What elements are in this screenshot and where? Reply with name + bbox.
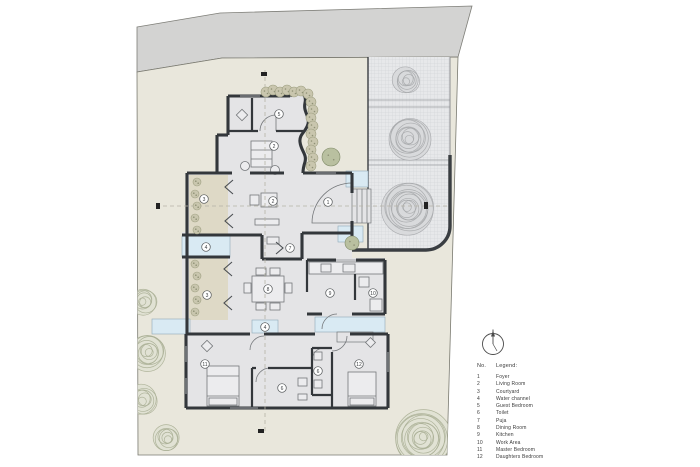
room-label: 5 — [275, 110, 284, 119]
shrub-dot — [312, 151, 314, 153]
legend: No. Legend: 1Foyer2Living Room3Courtyard… — [477, 362, 587, 462]
shrub — [306, 161, 316, 171]
legend-title: Legend: — [496, 362, 517, 371]
shrub-dot — [195, 288, 197, 290]
legend-name: Daughters Bedroom — [496, 454, 543, 461]
shrub-dot — [281, 93, 283, 95]
legend-name: Master Bedroom — [496, 447, 535, 454]
legend-no: 9 — [477, 432, 496, 439]
svg-text:3: 3 — [203, 197, 206, 203]
legend-name: Dining Room — [496, 425, 527, 432]
legend-header: No. Legend: — [477, 362, 587, 371]
legend-row: 6Toilet — [477, 410, 587, 417]
svg-text:1: 1 — [327, 200, 330, 206]
svg-text:2: 2 — [272, 199, 275, 205]
room-label: 7 — [286, 244, 295, 253]
svg-text:11: 11 — [202, 362, 207, 368]
svg-text:2: 2 — [273, 144, 276, 150]
shrub-dot — [309, 132, 311, 134]
shrub-dot — [195, 204, 197, 206]
shrub-dot — [333, 159, 335, 161]
legend-row: 7Puja — [477, 418, 587, 425]
legend-name: Puja — [496, 418, 507, 425]
room-label: 3 — [203, 291, 212, 300]
shrub-dot — [278, 90, 280, 92]
shrub-dot — [309, 148, 311, 150]
shrub-dot — [314, 127, 316, 129]
legend-row: 1Foyer — [477, 374, 587, 381]
legend-name: Toilet — [496, 410, 509, 417]
room-label: 12 — [355, 360, 364, 369]
room-label: 11 — [201, 360, 210, 369]
shrub-dot — [328, 154, 330, 156]
legend-row: 12Daughters Bedroom — [477, 454, 587, 461]
shrub-dot — [295, 93, 297, 95]
svg-text:8: 8 — [267, 287, 270, 293]
legend-no: 7 — [477, 418, 496, 425]
room-label: 3 — [200, 195, 209, 204]
shrub-dot — [353, 244, 355, 246]
shrub — [322, 148, 340, 166]
shrub — [193, 202, 201, 210]
shrub-dot — [197, 300, 199, 302]
shrub-dot — [285, 88, 287, 90]
legend-name: Courtyard — [496, 389, 519, 396]
shrub-dot — [197, 182, 199, 184]
svg-text:7: 7 — [289, 246, 292, 252]
shrub-dot — [195, 312, 197, 314]
room-label: 10 — [369, 289, 378, 298]
shrub — [191, 260, 199, 268]
legend-no: 8 — [477, 425, 496, 432]
shrub-dot — [193, 192, 195, 194]
shrub — [193, 178, 201, 186]
room-label: 4 — [261, 323, 270, 332]
shrub-dot — [311, 108, 313, 110]
shrub — [191, 308, 199, 316]
shrub-dot — [314, 111, 316, 113]
legend-rows: 1Foyer2Living Room3Courtyard4Water chann… — [477, 374, 587, 462]
shrub-dot — [314, 143, 316, 145]
shrub-dot — [193, 286, 195, 288]
legend-no: 10 — [477, 440, 496, 447]
legend-row: 2Living Room — [477, 381, 587, 388]
legend-name: Foyer — [496, 374, 510, 381]
legend-row: 5Guest Bedroom — [477, 403, 587, 410]
site-plan-drawing: 1223344566789101112 — [0, 0, 700, 467]
shrub — [191, 284, 199, 292]
site-plan-page: 1223344566789101112 No. Legend: 1Foyer2L… — [0, 0, 700, 467]
shrub-dot — [195, 180, 197, 182]
svg-text:12: 12 — [356, 362, 362, 368]
room-label: 2 — [270, 142, 279, 151]
shrub-dot — [193, 216, 195, 218]
legend-no: 2 — [477, 381, 496, 388]
shrub-dot — [193, 310, 195, 312]
shrub-dot — [306, 92, 308, 94]
shrub-dot — [311, 140, 313, 142]
legend-row: 9Kitchen — [477, 432, 587, 439]
legend-row: 10Work Area — [477, 440, 587, 447]
shrub — [191, 214, 199, 222]
shrub-dot — [312, 167, 314, 169]
north-arrow-icon — [483, 330, 504, 355]
room-label: 4 — [202, 243, 211, 252]
shrub-dot — [195, 298, 197, 300]
legend-no: 4 — [477, 396, 496, 403]
shrub-dot — [311, 156, 313, 158]
shrub-dot — [314, 159, 316, 161]
legend-name: Work Area — [496, 440, 521, 447]
svg-text:3: 3 — [206, 293, 209, 299]
room-label: 2 — [269, 197, 278, 206]
shrub-dot — [309, 164, 311, 166]
shrub-dot — [197, 276, 199, 278]
svg-text:6: 6 — [317, 369, 320, 375]
shrub-dot — [312, 135, 314, 137]
legend-row: 8Dining Room — [477, 425, 587, 432]
svg-text:9: 9 — [329, 291, 332, 297]
shrub-dot — [312, 103, 314, 105]
svg-text:5: 5 — [278, 112, 281, 118]
shrub-dot — [195, 264, 197, 266]
legend-no-header: No. — [477, 362, 496, 371]
shrub-dot — [193, 262, 195, 264]
room-label: 6 — [278, 384, 287, 393]
shrub-dot — [197, 230, 199, 232]
svg-text:4: 4 — [264, 325, 267, 331]
legend-row: 3Courtyard — [477, 389, 587, 396]
tree — [396, 410, 452, 466]
shrub — [191, 190, 199, 198]
legend-name: Guest Bedroom — [496, 403, 533, 410]
shrub-dot — [271, 88, 273, 90]
shrub-dot — [309, 100, 311, 102]
shrub — [345, 236, 359, 250]
shrub-dot — [312, 119, 314, 121]
shrub-dot — [195, 228, 197, 230]
legend-no: 1 — [477, 374, 496, 381]
shrub-dot — [267, 93, 269, 95]
shrub-dot — [195, 274, 197, 276]
room-label: 9 — [326, 289, 335, 298]
shrub-dot — [197, 206, 199, 208]
shrub — [193, 296, 201, 304]
shrub — [193, 226, 201, 234]
shrub — [193, 272, 201, 280]
legend-no: 12 — [477, 454, 496, 461]
legend-no: 3 — [477, 389, 496, 396]
svg-text:6: 6 — [281, 386, 284, 392]
svg-text:4: 4 — [205, 245, 208, 251]
legend-name: Water channel — [496, 396, 530, 403]
shrub-dot — [195, 218, 197, 220]
room-label: 6 — [314, 367, 323, 376]
svg-text:10: 10 — [370, 291, 376, 297]
legend-name: Living Room — [496, 381, 525, 388]
shrub-dot — [195, 194, 197, 196]
shrub-dot — [264, 90, 266, 92]
room-label: 1 — [324, 198, 333, 207]
room-label: 8 — [264, 285, 273, 294]
shrub-dot — [299, 89, 301, 91]
legend-name: Kitchen — [496, 432, 514, 439]
legend-no: 11 — [477, 447, 496, 454]
legend-no: 6 — [477, 410, 496, 417]
legend-no: 5 — [477, 403, 496, 410]
legend-row: 11Master Bedroom — [477, 447, 587, 454]
shrub-dot — [309, 116, 311, 118]
shrub-dot — [292, 90, 294, 92]
shrub-dot — [311, 124, 313, 126]
shrub-dot — [309, 95, 311, 97]
legend-row: 4Water channel — [477, 396, 587, 403]
shrub-dot — [349, 241, 351, 243]
